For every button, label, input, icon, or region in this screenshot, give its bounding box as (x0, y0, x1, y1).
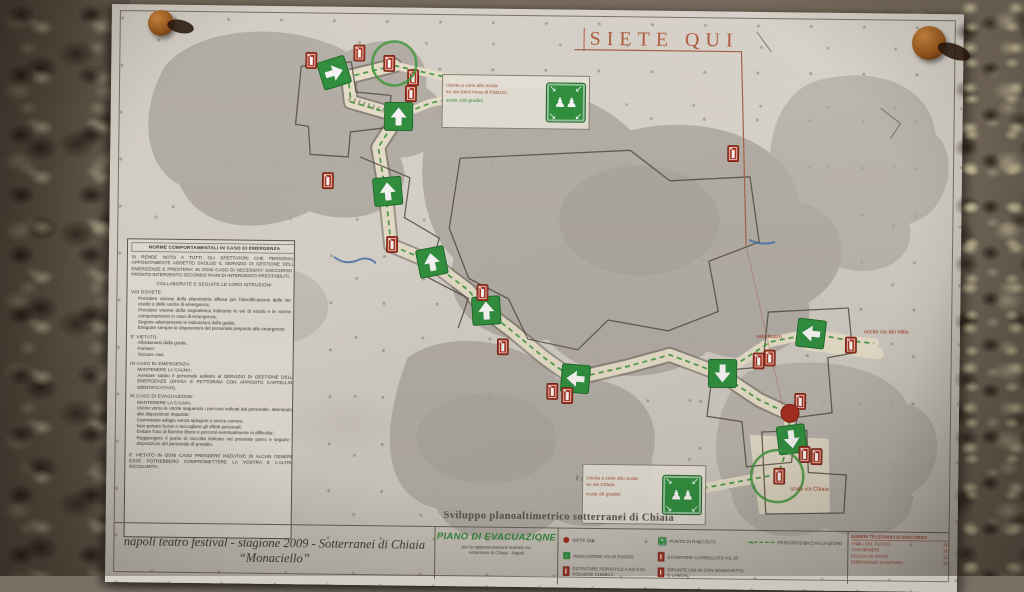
you-are-here-dot (563, 537, 569, 543)
phone-row: EMERGENZA SANITARIA118 (851, 559, 949, 566)
emergency-rules-panel: NORME COMPORTAMENTALI IN CASO DI EMERGEN… (123, 238, 295, 539)
assembly-bottom-line: scala 96 gradini (586, 490, 662, 498)
phone-table-title: NUMERI TELEFONICI DI SOCCORSO (851, 534, 948, 541)
rules-item: Eseguire sempre le disposizioni del pers… (131, 325, 296, 333)
emergency-numbers-cell: NUMERI TELEFONICI DI SOCCORSO VIGILI DEL… (848, 532, 949, 585)
legend-item: ESTINTORE CARRELLATO KG 30 (658, 549, 748, 566)
extinguisher-icon (563, 566, 570, 576)
rules-sections: VOI DOVETE:Prendere visione della planim… (129, 289, 295, 449)
rules-title: NORME COMPORTAMENTALI IN CASO DI EMERGEN… (132, 242, 296, 253)
legend-item: PERCORSO DI EVACUAZIONE (748, 534, 849, 551)
assembly-point-icon: ↘↘ ↗↗ ♟♟ (662, 475, 702, 515)
phone-table-rows: VIGILI DEL FUOCO115CARABINIERI112POLIZIA… (851, 541, 949, 566)
you-are-here-title: SIETE QUI (583, 28, 738, 53)
assembly-point-icon: ↘↘ ↗↗ ♟♟ (546, 82, 586, 122)
assembly-point-box-top: Uscita a cielo alto scala su via Sant'An… (442, 74, 591, 130)
route-dashed-line (748, 542, 774, 544)
rules-collaborate: COLLABORATE E SEGUITE LE LORO ISTRUZIONI (131, 280, 295, 288)
plan-title: PIANO DI EVACUAZIONE (435, 531, 557, 543)
assembly-top-line: su via Sant'Anna di Palazzo (446, 89, 539, 97)
legend-item: SIETE QUI (563, 532, 658, 549)
production-title-cell: napoli teatro festival - stagione 2009 -… (114, 523, 436, 579)
rules-item: Raggiungere il punto di raccolta indicat… (129, 435, 295, 449)
exit-sign-icon: ↑ (563, 552, 570, 559)
plan-subtext: per la rappresentazione teatrale nei sot… (436, 544, 557, 557)
legend-item: IDRANTE UNI 45 CON MANICHETTA E LANCIA (658, 565, 748, 582)
evacuation-plan-sheet: sala teatrouscita via dei Millescala via… (105, 4, 964, 592)
rules-item: Avvisare subito il personale addetto al … (130, 373, 295, 393)
photo-of-evacuation-plan: { "title": { "siete_qui": "SIETE QUI" },… (0, 0, 1024, 576)
assembly-point-icon: ↘↗♟ (658, 537, 667, 546)
assembly-top-line: scala 100 gradini (446, 97, 539, 105)
rules-item: Toccare cavi. (130, 352, 295, 360)
extinguisher-icon (658, 552, 665, 562)
rules-intro: SI RENDE NOTO A TUTTI GLI SPETTATORI CHE… (131, 254, 295, 280)
legend-item: ↑INDICAZIONE VIA DI ESODO (563, 548, 658, 565)
production-line2: “Monaciello” (114, 549, 434, 568)
legend-item: ESTINTORE PORTATILE A KG 6 DI POLVERE CH… (563, 563, 658, 580)
rules-warning: E' VIETATO IN OGNI CASO PRENDERE INIZIAT… (129, 452, 295, 472)
legend-item: ↘↗♟ PUNTO DI RACCOLTA (658, 533, 748, 550)
assembly-bottom-line: su via Chiaia (586, 481, 662, 489)
stone-wall-right (954, 0, 1024, 576)
